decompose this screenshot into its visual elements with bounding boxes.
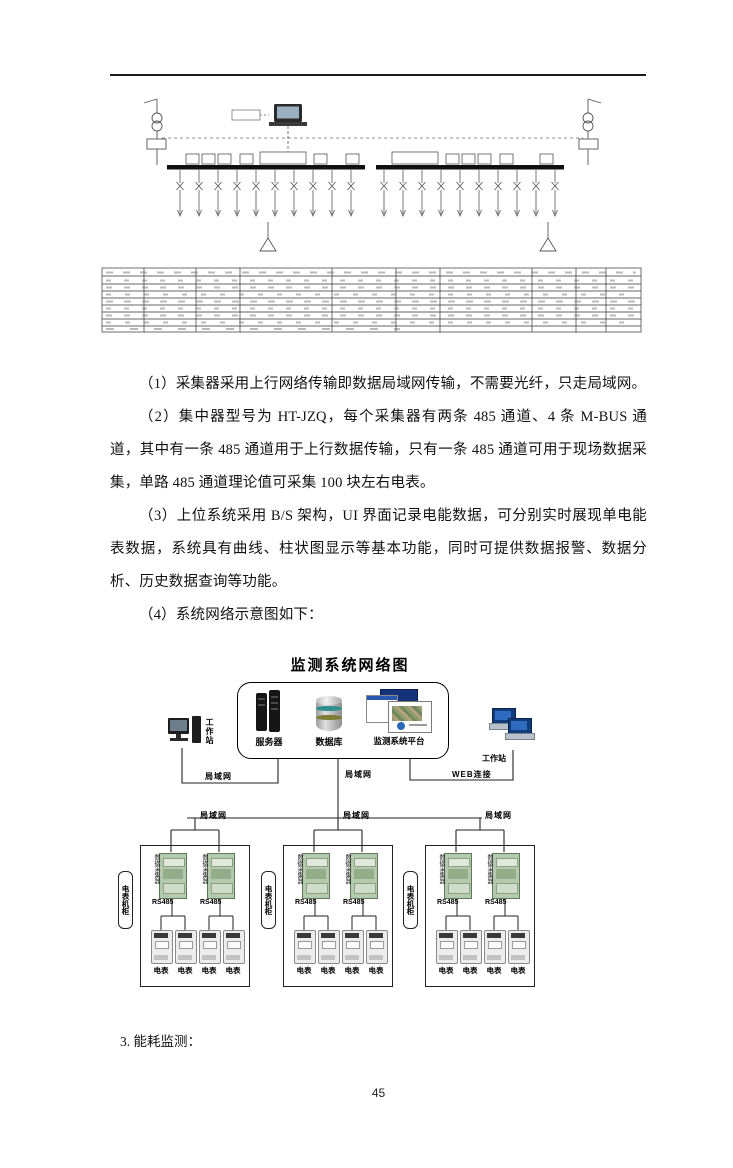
energy-meter-icon — [294, 930, 316, 964]
database-icon — [316, 697, 342, 731]
workstation-right-icon — [492, 708, 538, 750]
data-collector-device — [350, 853, 378, 899]
lan-branch-label-2: 局域网 — [343, 810, 370, 821]
paragraph-4: （4）系统网络示意图如下： — [110, 599, 647, 632]
single-line-diagram-graphic — [100, 92, 645, 345]
metering-unit-boxes — [186, 152, 553, 164]
monitoring-platform-icon — [366, 689, 430, 732]
data-collector-device — [159, 853, 187, 899]
energy-meter-icon — [508, 930, 530, 964]
data-collector-device — [444, 853, 472, 899]
workstation-left-icon — [168, 716, 202, 752]
meter-label: 电表 — [364, 965, 388, 976]
meter-label: 电表 — [292, 965, 316, 976]
server-icon — [256, 690, 282, 732]
meter-cabinet-branch-1: 电表机柜 数据采集器 数据采集器 RS485 RS485 电表 电表 电表 — [118, 845, 250, 987]
rs485-channel-label: RS485 — [152, 899, 186, 906]
table-text-marks — [106, 273, 636, 330]
rs485-channel-label: RS485 — [200, 899, 234, 906]
meter-cabinet-branch-2: 电表机柜 数据采集器 数据采集器 RS485 RS485 电表 电表 电表 — [261, 845, 393, 987]
meter-label: 电表 — [506, 965, 530, 976]
lan-branch-label-1: 局域网 — [200, 810, 227, 821]
meter-label: 电表 — [482, 965, 506, 976]
cabinet-label: 电表机柜 — [261, 871, 276, 929]
header-rule — [110, 74, 646, 76]
rs485-channel-label: RS485 — [437, 899, 471, 906]
transformer-symbol-right — [579, 99, 601, 165]
rs485-channel-label: RS485 — [485, 899, 519, 906]
server-label: 服务器 — [247, 735, 291, 748]
electrical-single-line-diagram — [100, 92, 645, 345]
energy-meter-icon — [175, 930, 197, 964]
meter-label: 电表 — [458, 965, 482, 976]
lan-link-label-center: 局域网 — [345, 769, 372, 780]
collector-label: 数据采集器 — [485, 854, 492, 884]
branch-box: 数据采集器 数据采集器 RS485 RS485 电表 电表 电表 电表 — [425, 845, 535, 987]
meter-label: 电表 — [221, 965, 245, 976]
paragraph-3: （3）上位系统采用 B/S 架构，UI 界面记录电能数据，可分别实时展现单电能表… — [110, 500, 647, 599]
transformer-symbol-left — [144, 99, 166, 165]
database-label: 数据库 — [307, 735, 351, 748]
collector-label: 数据采集器 — [437, 854, 444, 884]
paragraph-2: （2）集中器型号为 HT-JZQ，每个采集器有两条 485 通道、4 条 M-B… — [110, 401, 647, 500]
delta-transformer-symbols — [260, 222, 556, 251]
body-text: （1）采集器采用上行网络传输即数据局域网传输，不需要光纤，只走局域网。 （2）集… — [110, 368, 647, 632]
lan-link-label-left: 局域网 — [205, 771, 232, 782]
energy-meter-icon — [484, 930, 506, 964]
branch-box: 数据采集器 数据采集器 RS485 RS485 电表 电表 电表 电表 — [140, 845, 250, 987]
web-link-label: WEB连接 — [452, 769, 492, 780]
collector-label: 数据采集器 — [343, 854, 350, 884]
energy-meter-icon — [318, 930, 340, 964]
platform-box: 服务器 数据库 监测系统平台 — [237, 682, 449, 759]
laptop-icon — [232, 104, 307, 126]
energy-meter-icon — [366, 930, 388, 964]
data-collector-device — [492, 853, 520, 899]
collector-label: 数据采集器 — [200, 854, 207, 884]
energy-meter-icon — [151, 930, 173, 964]
lan-branch-label-3: 局域网 — [485, 810, 512, 821]
meter-label: 电表 — [434, 965, 458, 976]
meter-label: 电表 — [173, 965, 197, 976]
busbar-right — [376, 165, 564, 170]
meter-cabinet-branch-3: 电表机柜 数据采集器 数据采集器 RS485 RS485 电表 电表 电表 — [403, 845, 535, 987]
collector-label: 数据采集器 — [295, 854, 302, 884]
feeder-circuits — [177, 170, 559, 216]
rs485-channel-label: RS485 — [295, 899, 329, 906]
energy-meter-icon — [460, 930, 482, 964]
busbar-left — [167, 165, 365, 170]
paragraph-1: （1）采集器采用上行网络传输即数据局域网传输，不需要光纤，只走局域网。 — [110, 368, 647, 401]
document-page: （1）采集器采用上行网络传输即数据局域网传输，不需要光纤，只走局域网。 （2）集… — [0, 0, 733, 1168]
workstation-right-label: 工作站 — [482, 753, 506, 764]
meter-label: 电表 — [197, 965, 221, 976]
energy-meter-icon — [436, 930, 458, 964]
meter-label: 电表 — [149, 965, 173, 976]
rs485-channel-label: RS485 — [343, 899, 377, 906]
cabinet-label: 电表机柜 — [403, 871, 418, 929]
page-number: 45 — [110, 1086, 647, 1100]
section-heading: 3. 能耗监测： — [120, 1030, 201, 1050]
data-collector-device — [207, 853, 235, 899]
collector-label: 数据采集器 — [152, 854, 159, 884]
energy-meter-icon — [199, 930, 221, 964]
platform-label: 监测系统平台 — [366, 735, 432, 747]
meter-label: 电表 — [340, 965, 364, 976]
branch-box: 数据采集器 数据采集器 RS485 RS485 电表 电表 电表 电表 — [283, 845, 393, 987]
meter-label: 电表 — [316, 965, 340, 976]
cabinet-label: 电表机柜 — [118, 871, 133, 929]
data-collector-device — [302, 853, 330, 899]
network-diagram: 监测系统网络图 服务器 — [110, 652, 655, 1002]
workstation-left-label: 工作站 — [204, 718, 215, 745]
energy-meter-icon — [223, 930, 245, 964]
energy-meter-icon — [342, 930, 364, 964]
